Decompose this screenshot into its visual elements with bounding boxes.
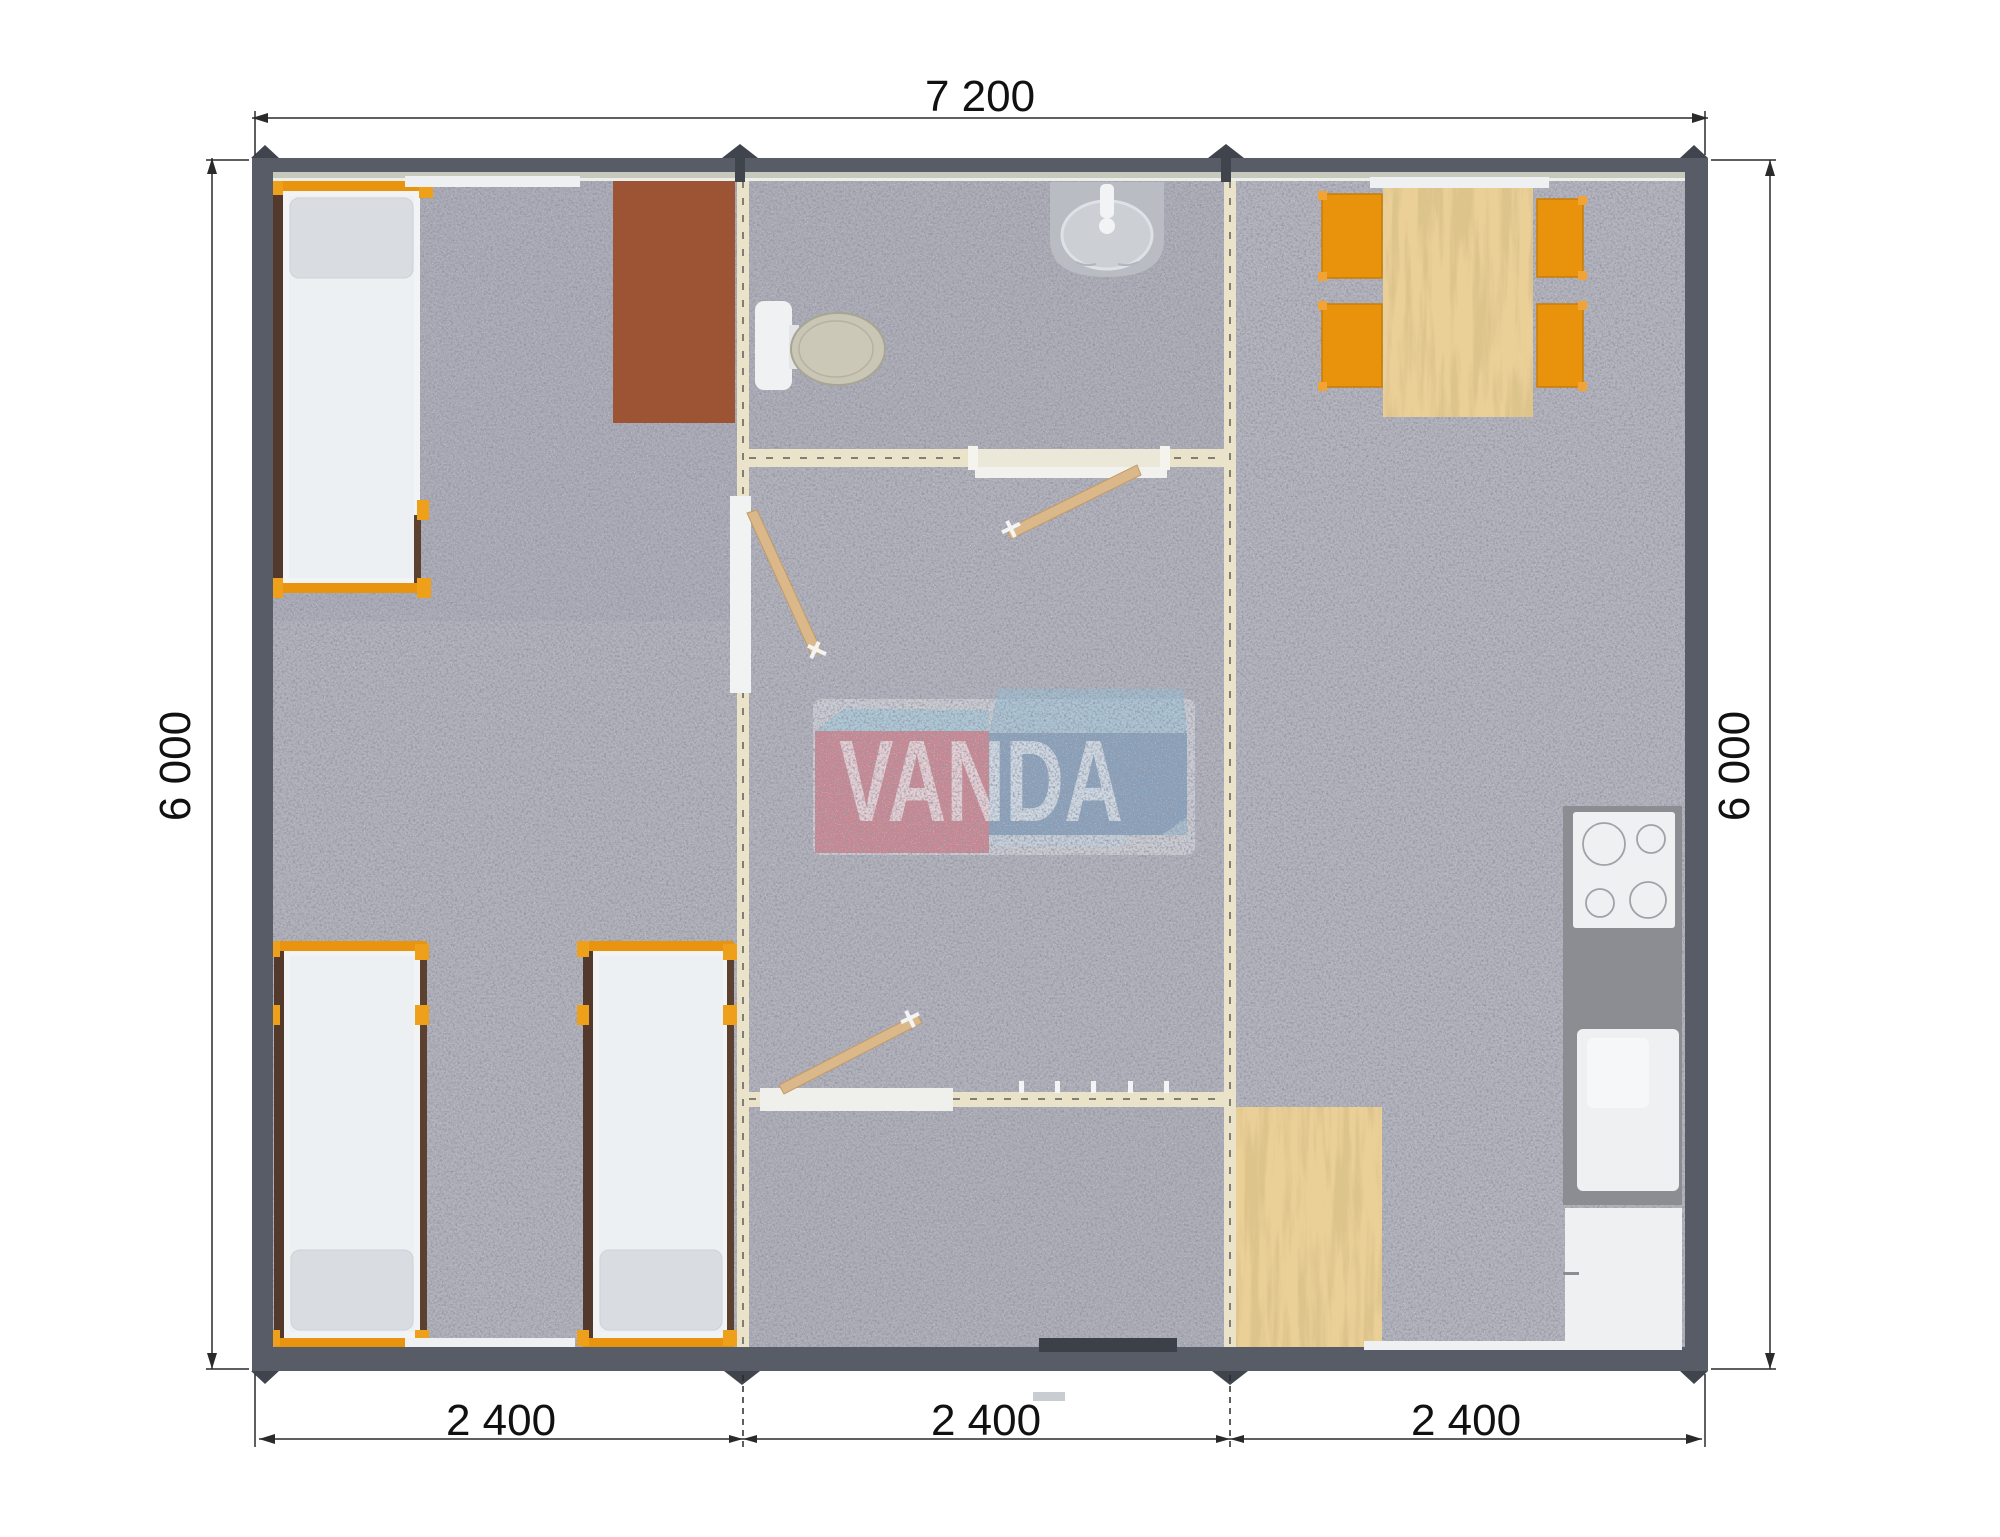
svg-text:6 000: 6 000 <box>1710 711 1759 821</box>
svg-text:VANDA: VANDA <box>839 716 1123 846</box>
svg-text:2 400: 2 400 <box>1411 1396 1521 1445</box>
svg-text:2 400: 2 400 <box>446 1396 556 1445</box>
svg-text:2 400: 2 400 <box>931 1396 1041 1445</box>
svg-text:6 000: 6 000 <box>151 711 200 821</box>
svg-text:7 200: 7 200 <box>925 72 1035 121</box>
